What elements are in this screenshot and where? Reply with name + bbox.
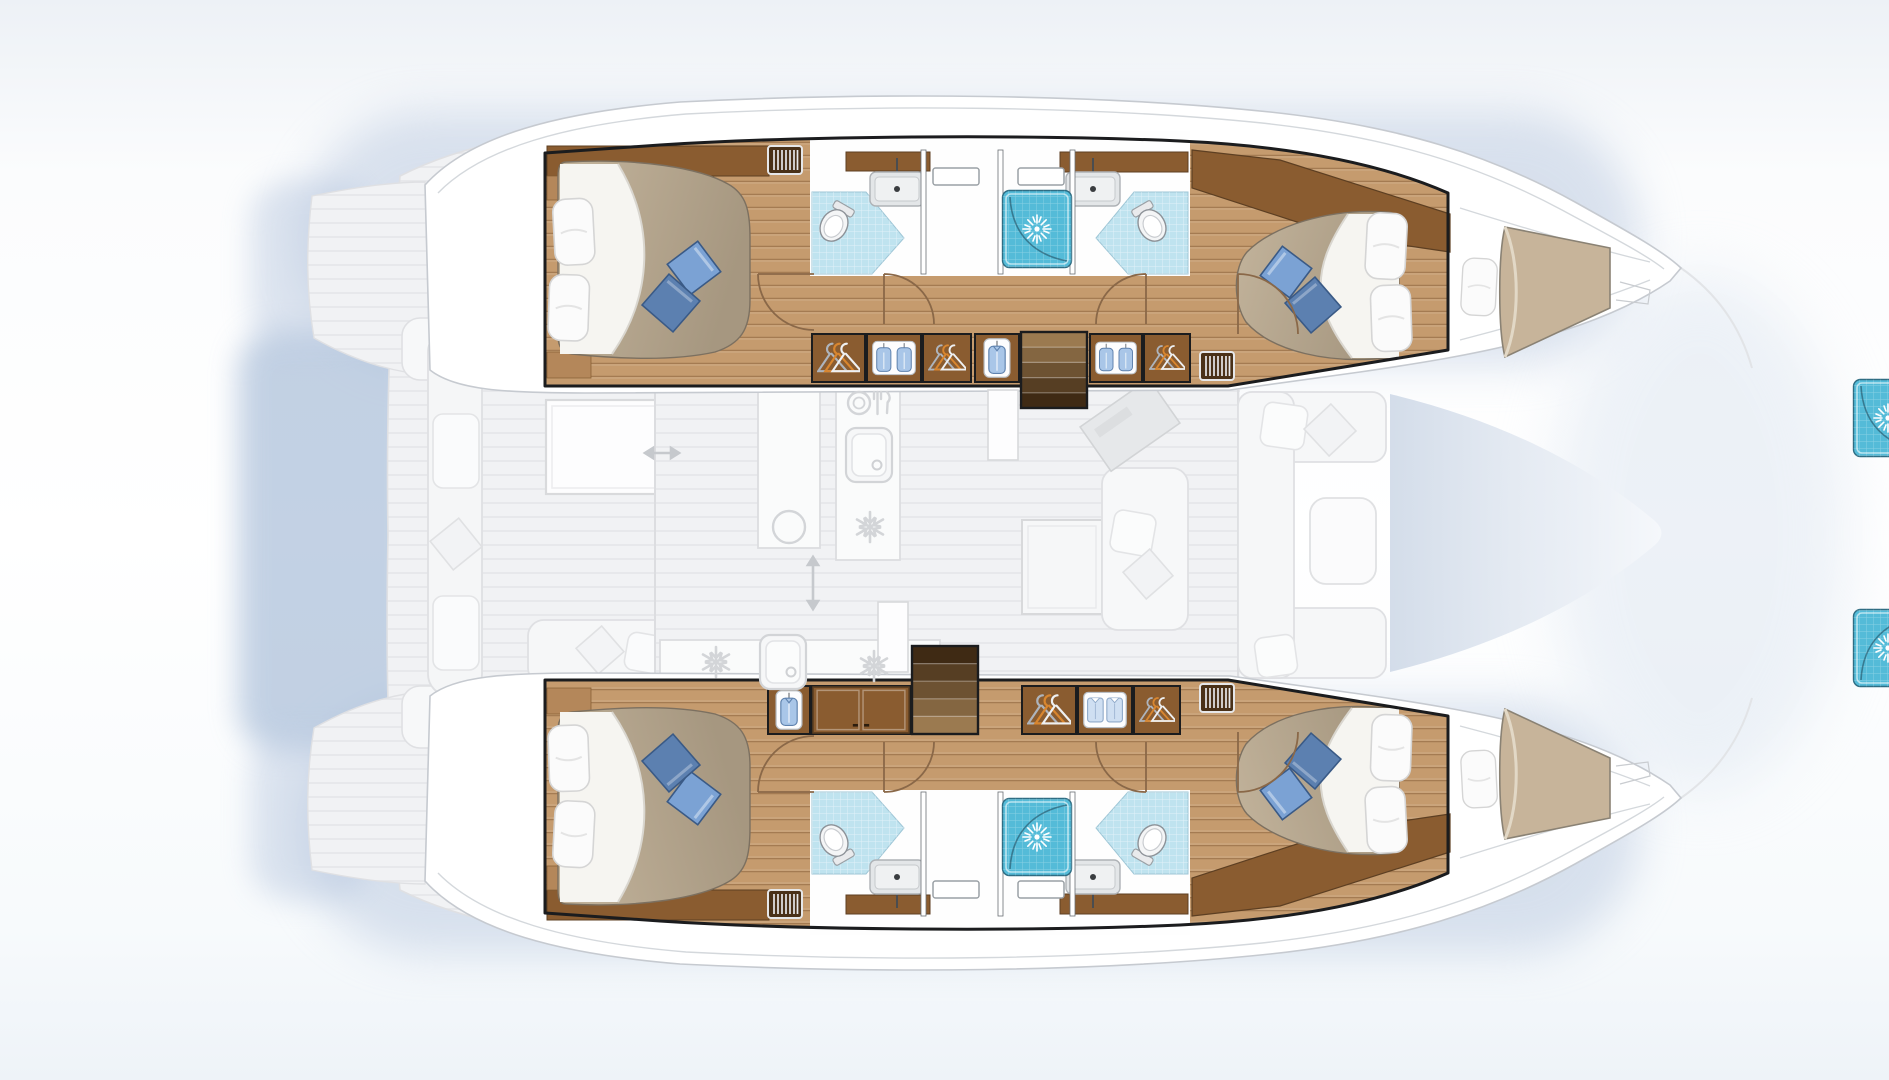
- forward-cockpit: [1238, 392, 1386, 679]
- saloon-sofa: [1102, 468, 1188, 630]
- galley-counter: [758, 388, 820, 548]
- vent-grille-icon: [768, 890, 802, 918]
- wardrobe-locker-hangers: [1022, 686, 1076, 734]
- wardrobe-locker-hangers: [812, 334, 865, 382]
- stair-wall: [988, 390, 1018, 460]
- wardrobe-locker-garment: [768, 686, 810, 734]
- floor-plan-canvas: [0, 0, 1889, 1080]
- wardrobe-locker-shirts: [1078, 686, 1132, 734]
- galley-sink-icon: [760, 635, 806, 689]
- galley-sink-icon: [846, 428, 892, 482]
- companionway-stairs: [1021, 332, 1087, 409]
- wardrobe-locker-hangers: [923, 334, 971, 382]
- dining-table: [1022, 520, 1102, 614]
- wardrobe-locker-garments2: [1090, 334, 1142, 382]
- vent-grille-icon: [1200, 684, 1234, 712]
- wardrobe-locker-hangers: [1134, 686, 1180, 734]
- wardrobe-locker-garments2: [867, 334, 921, 382]
- vent-grille-icon: [1200, 352, 1234, 380]
- companionway-stairs: [912, 646, 978, 735]
- wardrobe-locker-garment: [975, 334, 1019, 382]
- vent-grille-icon: [768, 146, 802, 174]
- wardrobe-locker-doors: [812, 686, 910, 734]
- cockpit-table: [546, 400, 666, 494]
- wardrobe-locker-hangers: [1144, 334, 1190, 382]
